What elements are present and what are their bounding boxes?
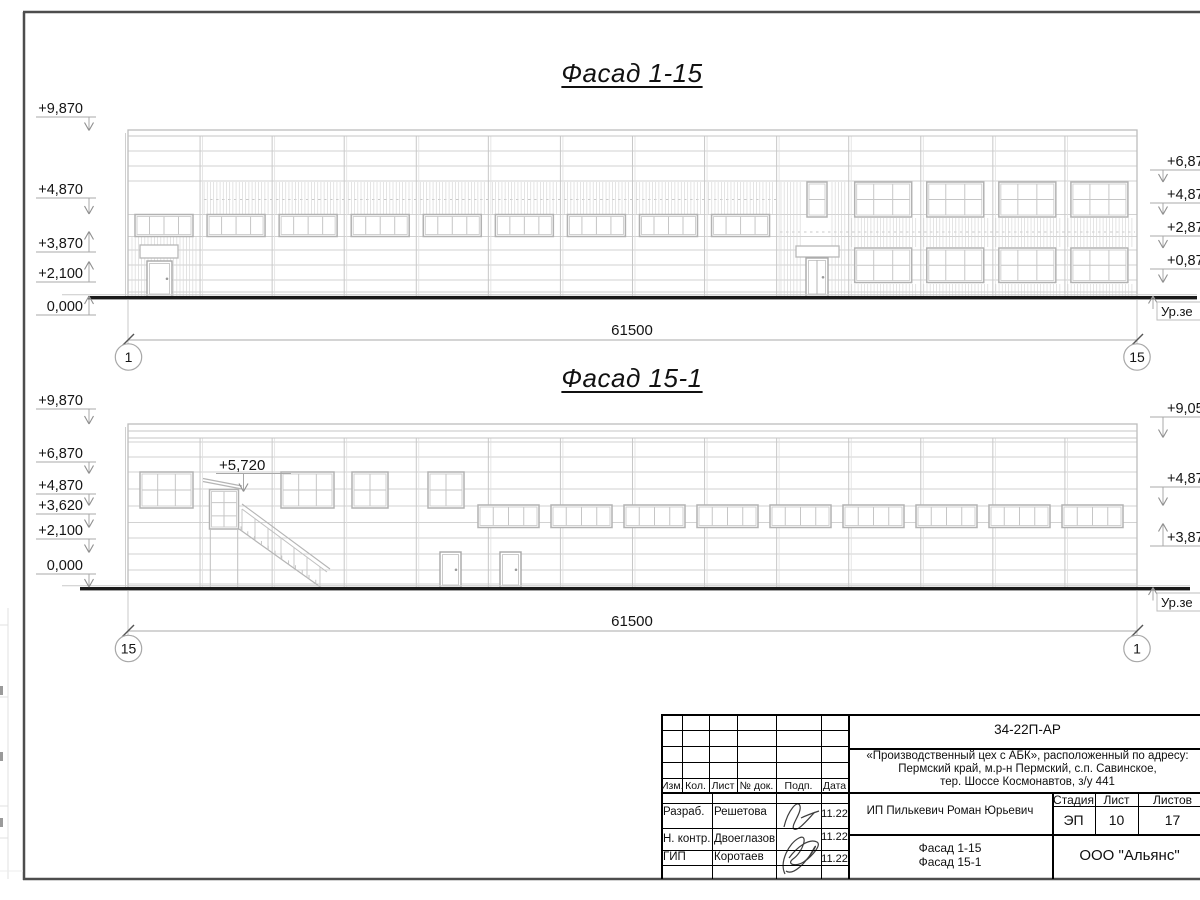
titleblock-line <box>776 714 777 879</box>
doc-number: 34-22П-АР <box>855 722 1200 738</box>
elevation-mark: +4,870 <box>36 182 96 214</box>
elevation-label: +3,620 <box>38 498 83 514</box>
elevation-mark: +4,87 <box>1150 471 1200 506</box>
elevation-mark: +6,870 <box>36 446 96 474</box>
elevation-arrow-icon <box>85 498 90 506</box>
ground-line <box>80 587 1190 590</box>
elevation-label: +3,87 <box>1167 530 1200 546</box>
titleblock-line <box>661 714 1200 716</box>
canopy <box>796 246 839 257</box>
elevation-mark: +3,87 <box>1150 524 1200 547</box>
door-handle <box>166 277 169 280</box>
elevation-arrow-icon <box>1159 207 1164 215</box>
elevation-arrow-icon <box>85 296 90 304</box>
elevation-arrow-icon <box>85 466 90 474</box>
drawing-sheet: +9,870+4,870+3,870+2,1000,000+6,87+4,87+… <box>0 0 1200 900</box>
titleblock-line <box>661 803 848 804</box>
titleblock-line <box>661 865 848 866</box>
facade-15-1-title: Фасад 15-1 <box>332 363 932 394</box>
signature-reshetova <box>784 804 819 830</box>
elevation-mark: +6,87 <box>1150 154 1200 182</box>
ground-line <box>88 296 1197 299</box>
dimension-value: 61500 <box>611 613 653 630</box>
elevation-arrow-icon <box>85 545 90 553</box>
elevation-arrow-icon <box>1163 174 1168 182</box>
door-handle <box>455 568 458 571</box>
column-header: Дата <box>821 780 848 792</box>
dimension-value: 61500 <box>611 322 653 339</box>
elevation-label: +9,870 <box>38 101 83 117</box>
elevation-arrow-icon <box>1163 430 1168 438</box>
elevation-arrow-icon <box>1159 275 1164 283</box>
signer-name: Решетова <box>714 806 774 819</box>
elevation-arrow-icon <box>1159 430 1164 438</box>
column-header: № док. <box>737 780 776 792</box>
door <box>500 552 521 588</box>
door-handle <box>515 568 518 571</box>
ground-label: Ур.зе <box>1161 595 1193 610</box>
axis-number: 15 <box>1129 349 1145 365</box>
signature-date: 11.22 <box>821 808 848 821</box>
elevation-arrow-icon <box>1163 207 1168 215</box>
elevation-mark: +2,100 <box>36 262 96 283</box>
elevation-mark: +3,870 <box>36 232 96 253</box>
elevation-label: +9,870 <box>38 393 83 409</box>
titleblock-line <box>661 828 848 829</box>
elevation-label: +6,87 <box>1167 154 1200 170</box>
elevation-label: +2,87 <box>1167 220 1200 236</box>
elevation-arrow-icon <box>85 416 90 424</box>
titleblock-line <box>661 778 848 779</box>
elevation-arrow-icon <box>89 416 94 424</box>
signatures <box>783 804 819 874</box>
signature-date: 11.22 <box>821 831 848 844</box>
elevation-arrow-icon <box>85 520 90 528</box>
elevation-arrow-icon <box>1163 498 1168 506</box>
margin-text-mark <box>0 818 3 827</box>
elevation-arrow-icon <box>1159 240 1164 248</box>
elevation-arrow-icon <box>89 123 94 131</box>
elevation-arrow-icon <box>89 545 94 553</box>
margin-text-mark <box>0 752 3 761</box>
stage-value: ЭП <box>1052 812 1095 828</box>
elevation-label: +5,720 <box>219 457 265 474</box>
elevation-label: +9,05 <box>1167 401 1200 417</box>
elevation-label: +2,100 <box>38 266 83 282</box>
column-header: Подп. <box>776 780 821 792</box>
project-address: Пермский край, м.р-н Пермский, с.п. Сави… <box>855 763 1200 776</box>
elevation-arrow-icon <box>89 206 94 214</box>
elevation-mark: +0,87 <box>1150 253 1200 283</box>
signer-name: Двоеглазов <box>714 833 774 846</box>
facade-1-15-title: Фасад 1-15 <box>332 58 932 89</box>
signer-role: ГИП <box>663 851 711 864</box>
signature-korotaev <box>783 837 818 874</box>
ground-level-mark: Ур.зе <box>1149 588 1200 612</box>
door <box>440 552 461 588</box>
sheet-header: Лист <box>1095 794 1138 808</box>
sheets-header: Листов <box>1138 794 1200 808</box>
axis-number: 1 <box>125 349 133 365</box>
facade-15-1-drawing: +5,720+9,870+6,870+4,870+3,620+2,1000,00… <box>36 393 1200 662</box>
elevation-arrow-icon <box>1163 240 1168 248</box>
elevation-arrow-icon <box>89 262 94 270</box>
axis-number: 15 <box>121 641 137 657</box>
axis-number: 1 <box>1133 641 1141 657</box>
elevation-arrow-icon <box>85 123 90 131</box>
project-address: «Производственный цех с АБК», расположен… <box>855 750 1200 763</box>
signer-role: Н. контр. <box>663 833 711 846</box>
drawing-title: Фасад 1-15 <box>848 842 1052 856</box>
column-header: Кол. <box>682 780 709 792</box>
elevation-mark: 0,000 <box>36 558 96 587</box>
elevation-label: +4,870 <box>38 182 83 198</box>
organization-name: ООО "Альянс" <box>1052 847 1200 864</box>
elevation-arrow-icon <box>89 520 94 528</box>
project-address: тер. Шоссе Космонавтов, з/у 441 <box>855 776 1200 789</box>
facade-1-15-drawing: +9,870+4,870+3,870+2,1000,000+6,87+4,87+… <box>36 101 1200 370</box>
elevation-label: +0,87 <box>1167 253 1200 269</box>
signer-name: Коротаев <box>714 851 774 864</box>
elevation-label: +3,870 <box>38 236 83 252</box>
elevation-label: +4,870 <box>38 478 83 494</box>
ground-label: Ур.зе <box>1161 304 1193 319</box>
elevation-arrow-icon <box>89 466 94 474</box>
drawing-title: Фасад 15-1 <box>848 856 1052 870</box>
titleblock-line <box>848 834 1200 836</box>
elevation-mark: +9,870 <box>36 393 96 424</box>
elevation-arrow-icon <box>85 262 90 270</box>
elevation-mark: +2,100 <box>36 523 96 553</box>
elevation-arrow-icon <box>1163 275 1168 283</box>
door-handle <box>822 276 825 279</box>
margin-text-mark <box>0 686 3 695</box>
signature-date: 11.22 <box>821 853 848 866</box>
titleblock-line <box>661 762 848 763</box>
elevation-arrow-icon <box>1159 174 1164 182</box>
ground-level-mark: Ур.зе <box>1149 296 1200 320</box>
elevation-mark: 0,000 <box>36 296 96 315</box>
column-header: Изм. <box>661 780 682 792</box>
canopy <box>140 245 178 258</box>
stage-header: Стадия <box>1052 794 1095 808</box>
elevation-label: +2,100 <box>38 523 83 539</box>
elevation-arrow-icon <box>89 498 94 506</box>
elevation-label: 0,000 <box>47 299 83 315</box>
elevation-arrow-icon <box>1159 498 1164 506</box>
sheet-value: 10 <box>1095 812 1138 828</box>
dimension: 61500151 <box>115 591 1150 662</box>
elevation-arrow-icon <box>1159 524 1164 532</box>
titleblock-line <box>661 730 848 731</box>
dimension: 61500115 <box>115 300 1150 370</box>
elevation-mark: +9,05 <box>1150 401 1200 438</box>
elevation-arrow-icon <box>244 484 249 492</box>
client-name: ИП Пилькевич Роман Юрьевич <box>850 805 1050 818</box>
column-header: Лист <box>709 780 737 792</box>
elevation-arrow-icon <box>85 232 90 240</box>
elevation-label: +6,870 <box>38 446 83 462</box>
sheets-value: 17 <box>1138 812 1200 828</box>
elevation-mark: +9,870 <box>36 101 96 131</box>
elevation-label: +4,87 <box>1167 471 1200 487</box>
elevation-label: 0,000 <box>47 558 83 574</box>
elevation-arrow-icon <box>239 484 244 492</box>
elevation-arrow-icon <box>85 206 90 214</box>
elevation-mark: +4,87 <box>1150 187 1200 215</box>
titleblock-line <box>661 746 848 747</box>
elevation-arrow-icon <box>89 232 94 240</box>
elevation-label: +4,87 <box>1167 187 1200 203</box>
elevation-mark: +2,87 <box>1150 220 1200 248</box>
signer-role: Разраб. <box>663 806 711 819</box>
